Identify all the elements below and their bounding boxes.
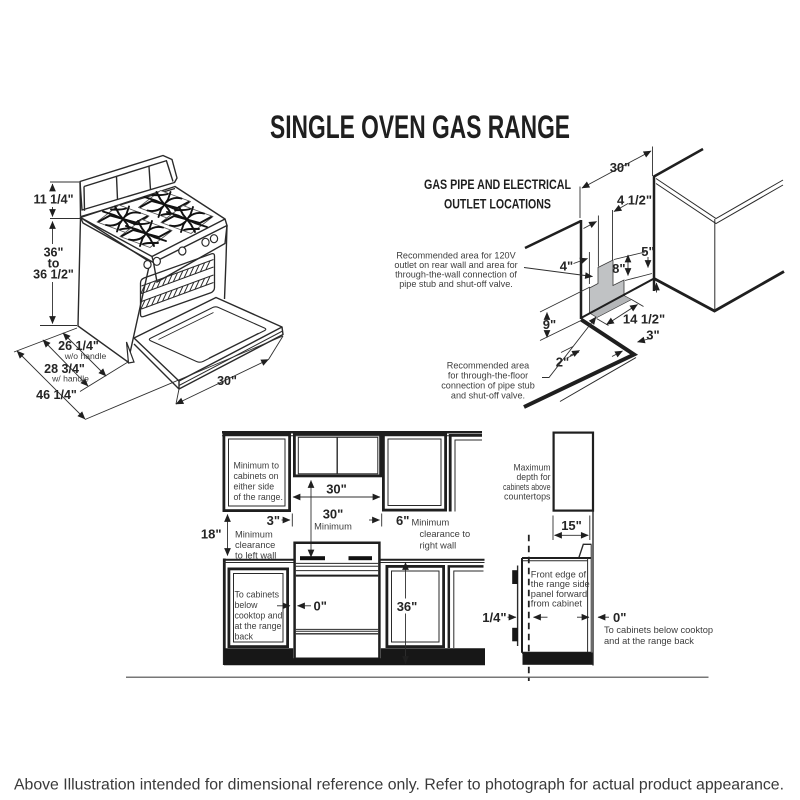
svg-text:connection of pipe stub: connection of pipe stub bbox=[441, 381, 535, 391]
svg-text:3": 3" bbox=[646, 328, 659, 343]
svg-text:through-the-wall connection of: through-the-wall connection of bbox=[395, 270, 517, 280]
svg-text:and shut-off valve.: and shut-off valve. bbox=[451, 391, 525, 401]
svg-text:5": 5" bbox=[641, 244, 654, 259]
svg-text:Recommended area for 120V: Recommended area for 120V bbox=[396, 251, 516, 261]
svg-text:Front edge of: Front edge of bbox=[531, 570, 587, 580]
svg-text:right wall: right wall bbox=[420, 541, 457, 551]
svg-text:Minimum: Minimum bbox=[412, 518, 450, 528]
svg-text:Recommended area: Recommended area bbox=[447, 361, 530, 371]
svg-text:w/o handle: w/o handle bbox=[64, 351, 107, 361]
svg-text:cabinets above: cabinets above bbox=[503, 482, 551, 492]
svg-text:outlet on rear wall and area f: outlet on rear wall and area for bbox=[394, 260, 517, 270]
svg-text:30": 30" bbox=[217, 374, 237, 388]
svg-text:To cabinets below cooktop: To cabinets below cooktop bbox=[604, 625, 713, 635]
svg-text:3": 3" bbox=[267, 513, 280, 528]
svg-text:GAS PIPE AND ELECTRICAL: GAS PIPE AND ELECTRICAL bbox=[424, 177, 571, 192]
svg-text:w/ handle: w/ handle bbox=[51, 373, 89, 383]
svg-text:pipe stub and shut-off valve.: pipe stub and shut-off valve. bbox=[399, 279, 513, 289]
svg-text:either side: either side bbox=[234, 482, 275, 492]
svg-text:0": 0" bbox=[314, 599, 327, 614]
svg-text:Maximum: Maximum bbox=[514, 463, 551, 473]
svg-text:Minimum to: Minimum to bbox=[234, 461, 280, 471]
svg-text:2": 2" bbox=[556, 355, 569, 370]
svg-text:30": 30" bbox=[610, 160, 631, 175]
svg-text:of the range.: of the range. bbox=[234, 492, 283, 502]
svg-text:Minimum: Minimum bbox=[314, 522, 352, 532]
svg-text:and at the range back: and at the range back bbox=[604, 636, 694, 646]
svg-text:depth for: depth for bbox=[517, 472, 551, 482]
svg-text:the range side: the range side bbox=[531, 579, 590, 589]
svg-text:cooktop and: cooktop and bbox=[235, 611, 283, 621]
svg-text:30": 30" bbox=[323, 507, 344, 522]
svg-text:for through-the-floor: for through-the-floor bbox=[448, 371, 528, 381]
svg-text:1/4": 1/4" bbox=[482, 610, 506, 625]
svg-text:36 1/2": 36 1/2" bbox=[33, 267, 74, 281]
svg-text:15": 15" bbox=[561, 518, 582, 533]
svg-text:9": 9" bbox=[543, 317, 556, 332]
svg-text:Above Illustration intended fo: Above Illustration intended for dimensio… bbox=[14, 777, 784, 794]
svg-text:countertops: countertops bbox=[504, 492, 551, 502]
svg-text:at the range: at the range bbox=[235, 621, 282, 631]
svg-text:back: back bbox=[235, 632, 254, 642]
svg-text:To cabinets: To cabinets bbox=[235, 590, 280, 600]
svg-text:30": 30" bbox=[326, 482, 347, 497]
svg-text:6": 6" bbox=[396, 513, 409, 528]
svg-text:below: below bbox=[235, 600, 259, 610]
svg-text:clearance: clearance bbox=[235, 540, 275, 550]
svg-text:panel forward: panel forward bbox=[531, 589, 587, 599]
svg-text:from cabinet: from cabinet bbox=[531, 599, 583, 609]
svg-text:0": 0" bbox=[613, 610, 626, 625]
svg-text:46 1/4": 46 1/4" bbox=[36, 388, 77, 402]
svg-text:8": 8" bbox=[612, 261, 625, 276]
svg-text:36": 36" bbox=[397, 599, 418, 614]
svg-text:4 1/2": 4 1/2" bbox=[617, 193, 652, 208]
svg-text:Minimum: Minimum bbox=[235, 530, 273, 540]
svg-text:11 1/4": 11 1/4" bbox=[34, 192, 74, 206]
svg-text:14 1/2": 14 1/2" bbox=[623, 312, 665, 327]
svg-text:4": 4" bbox=[560, 259, 573, 274]
svg-text:cabinets on: cabinets on bbox=[234, 471, 279, 481]
svg-text:18": 18" bbox=[201, 527, 222, 542]
svg-text:OUTLET LOCATIONS: OUTLET LOCATIONS bbox=[444, 197, 551, 212]
svg-text:SINGLE OVEN GAS RANGE: SINGLE OVEN GAS RANGE bbox=[270, 109, 570, 145]
svg-text:clearance to: clearance to bbox=[420, 529, 471, 539]
